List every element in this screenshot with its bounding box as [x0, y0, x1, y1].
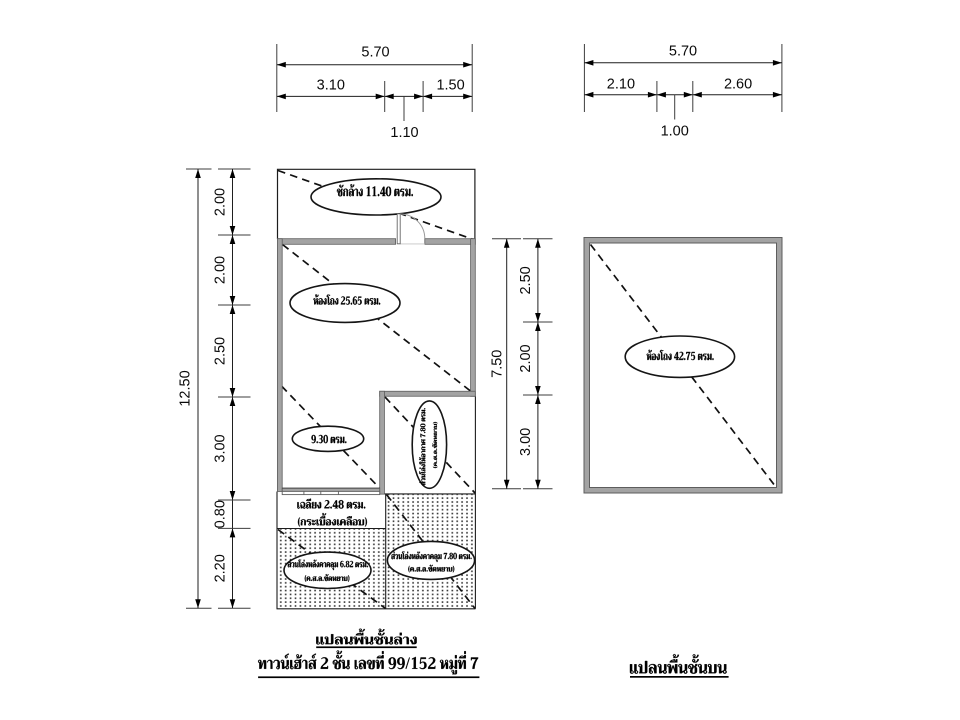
svg-text:2.50: 2.50 [213, 337, 229, 365]
svg-text:2.60: 2.60 [724, 77, 752, 93]
svg-text:2.00: 2.00 [518, 344, 534, 372]
svg-text:1.10: 1.10 [390, 125, 418, 141]
svg-text:0.80: 0.80 [213, 500, 229, 528]
svg-text:7.50: 7.50 [490, 350, 506, 378]
svg-text:12.50: 12.50 [178, 370, 194, 406]
svg-text:2.20: 2.20 [213, 554, 229, 582]
svg-text:3.00: 3.00 [518, 428, 534, 456]
svg-text:2.00: 2.00 [213, 256, 229, 284]
svg-text:3.00: 3.00 [213, 434, 229, 462]
svg-text:5.70: 5.70 [361, 45, 389, 61]
svg-text:2.00: 2.00 [213, 188, 229, 216]
svg-text:1.00: 1.00 [661, 124, 689, 140]
svg-text:2.50: 2.50 [518, 266, 534, 294]
svg-text:2.10: 2.10 [607, 77, 635, 93]
svg-text:3.10: 3.10 [317, 78, 345, 94]
svg-text:1.50: 1.50 [436, 78, 464, 94]
svg-text:5.70: 5.70 [669, 44, 697, 60]
